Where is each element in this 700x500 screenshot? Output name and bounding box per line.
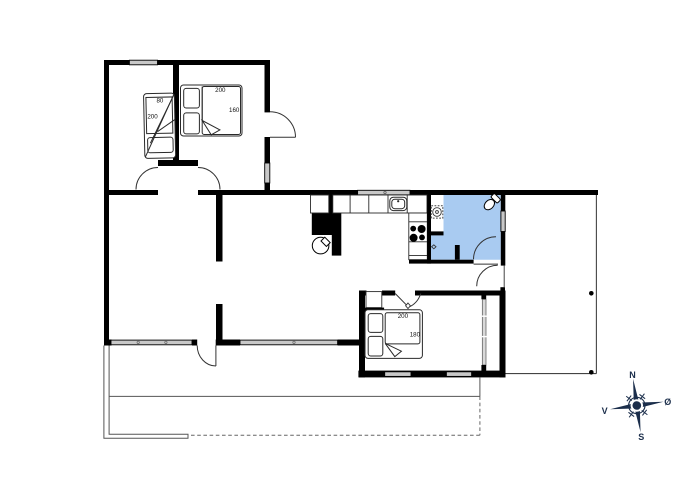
svg-text:200: 200 <box>398 313 409 320</box>
svg-text:180: 180 <box>410 332 421 339</box>
svg-text:V: V <box>602 406 608 416</box>
svg-text:80: 80 <box>156 98 163 105</box>
svg-text:Ø: Ø <box>664 397 671 407</box>
svg-text:200: 200 <box>147 113 158 120</box>
svg-text:N: N <box>629 370 636 380</box>
svg-text:S: S <box>638 432 644 442</box>
svg-text:200: 200 <box>215 87 226 94</box>
svg-text:160: 160 <box>229 107 240 114</box>
